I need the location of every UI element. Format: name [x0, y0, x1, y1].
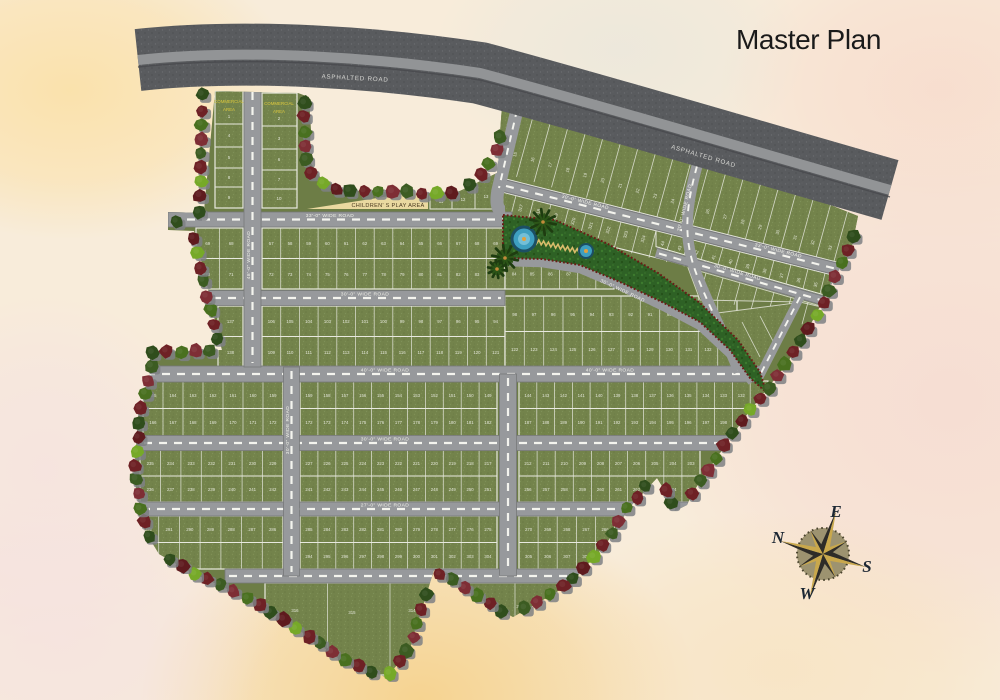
- svg-text:189: 189: [560, 420, 568, 425]
- svg-text:181: 181: [467, 420, 475, 425]
- svg-text:140: 140: [595, 393, 603, 398]
- svg-text:289: 289: [207, 527, 215, 532]
- svg-text:244: 244: [359, 487, 367, 492]
- svg-text:152: 152: [431, 393, 439, 398]
- svg-text:30'-0" WIDE ROAD: 30'-0" WIDE ROAD: [285, 406, 291, 455]
- svg-text:211: 211: [543, 461, 550, 466]
- svg-text:269: 269: [544, 527, 552, 532]
- svg-text:109: 109: [268, 350, 276, 355]
- svg-text:124: 124: [550, 347, 558, 352]
- svg-text:133: 133: [720, 393, 728, 398]
- svg-text:N: N: [771, 528, 785, 547]
- svg-text:246: 246: [395, 487, 403, 492]
- svg-text:136: 136: [667, 393, 675, 398]
- svg-text:60: 60: [325, 241, 330, 246]
- svg-text:316: 316: [291, 608, 299, 613]
- svg-text:276: 276: [467, 527, 475, 532]
- svg-text:78: 78: [381, 272, 386, 277]
- svg-text:191: 191: [595, 420, 603, 425]
- svg-text:118: 118: [436, 350, 443, 355]
- svg-text:194: 194: [649, 420, 657, 425]
- svg-text:195: 195: [667, 420, 675, 425]
- svg-text:232: 232: [208, 461, 216, 466]
- svg-text:72: 72: [269, 272, 274, 277]
- svg-text:79: 79: [400, 272, 405, 277]
- svg-text:224: 224: [359, 461, 367, 466]
- svg-text:231: 231: [228, 461, 236, 466]
- svg-text:298: 298: [377, 554, 385, 559]
- svg-text:96: 96: [551, 312, 556, 317]
- svg-text:27'-0" WIDE ROAD: 27'-0" WIDE ROAD: [361, 503, 410, 509]
- svg-text:97: 97: [437, 319, 442, 324]
- svg-text:180: 180: [449, 420, 457, 425]
- svg-text:204: 204: [669, 461, 677, 466]
- svg-text:68: 68: [475, 241, 480, 246]
- svg-text:40'-0" WIDE ROAD: 40'-0" WIDE ROAD: [361, 368, 410, 374]
- svg-text:238: 238: [188, 487, 196, 492]
- svg-text:247: 247: [413, 487, 421, 492]
- svg-text:178: 178: [413, 420, 421, 425]
- svg-text:250: 250: [467, 487, 475, 492]
- svg-text:163: 163: [189, 393, 197, 398]
- svg-text:287: 287: [248, 527, 256, 532]
- svg-text:142: 142: [560, 393, 568, 398]
- svg-text:74: 74: [306, 272, 311, 277]
- svg-text:227: 227: [305, 461, 313, 466]
- svg-text:192: 192: [613, 420, 621, 425]
- svg-text:106: 106: [268, 319, 276, 324]
- svg-text:144: 144: [524, 393, 532, 398]
- svg-text:97: 97: [532, 312, 537, 317]
- svg-text:149: 149: [484, 393, 492, 398]
- svg-text:13: 13: [484, 194, 489, 199]
- svg-text:125: 125: [569, 347, 577, 352]
- svg-text:207: 207: [615, 461, 623, 466]
- svg-text:73: 73: [288, 272, 293, 277]
- svg-text:Master Plan: Master Plan: [736, 24, 881, 55]
- svg-text:277: 277: [449, 527, 457, 532]
- svg-text:301: 301: [431, 554, 439, 559]
- svg-text:104: 104: [305, 319, 313, 324]
- svg-text:217: 217: [484, 461, 492, 466]
- svg-text:117: 117: [417, 350, 424, 355]
- svg-text:137: 137: [227, 319, 235, 324]
- svg-text:135: 135: [684, 393, 692, 398]
- svg-text:279: 279: [413, 527, 421, 532]
- svg-text:300: 300: [413, 554, 421, 559]
- svg-text:256: 256: [524, 487, 532, 492]
- svg-text:CHILDREN' S PLAY AREA: CHILDREN' S PLAY AREA: [351, 203, 424, 209]
- svg-text:65: 65: [419, 241, 424, 246]
- svg-text:278: 278: [431, 527, 439, 532]
- svg-text:170: 170: [229, 420, 237, 425]
- svg-text:57: 57: [269, 241, 274, 246]
- svg-text:66: 66: [437, 241, 442, 246]
- svg-text:169: 169: [209, 420, 217, 425]
- svg-text:122: 122: [511, 347, 519, 352]
- svg-text:188: 188: [542, 420, 550, 425]
- svg-text:128: 128: [627, 347, 635, 352]
- svg-text:114: 114: [361, 350, 368, 355]
- svg-text:116: 116: [399, 350, 406, 355]
- svg-text:63: 63: [381, 241, 386, 246]
- svg-text:249: 249: [449, 487, 457, 492]
- svg-text:143: 143: [542, 393, 550, 398]
- svg-text:236: 236: [147, 487, 155, 492]
- svg-text:218: 218: [467, 461, 475, 466]
- svg-text:182: 182: [484, 420, 492, 425]
- svg-text:30'-0" WIDE ROAD: 30'-0" WIDE ROAD: [361, 437, 410, 443]
- svg-text:127: 127: [608, 347, 616, 352]
- svg-text:257: 257: [543, 487, 551, 492]
- svg-text:102: 102: [343, 319, 351, 324]
- svg-text:158: 158: [323, 393, 331, 398]
- svg-text:282: 282: [359, 527, 367, 532]
- svg-text:103: 103: [324, 319, 332, 324]
- svg-text:157: 157: [341, 393, 349, 398]
- svg-text:242: 242: [269, 487, 277, 492]
- svg-text:226: 226: [323, 461, 331, 466]
- svg-text:160: 160: [249, 393, 257, 398]
- svg-text:212: 212: [524, 461, 532, 466]
- svg-text:131: 131: [685, 347, 693, 352]
- svg-text:111: 111: [305, 350, 312, 355]
- svg-text:237: 237: [167, 487, 175, 492]
- svg-text:61: 61: [344, 241, 349, 246]
- svg-text:98: 98: [512, 312, 517, 317]
- svg-text:302: 302: [449, 554, 457, 559]
- svg-text:67: 67: [456, 241, 461, 246]
- svg-text:240: 240: [228, 487, 236, 492]
- svg-text:130: 130: [666, 347, 674, 352]
- svg-text:129: 129: [646, 347, 654, 352]
- svg-text:COMMERCIAL: COMMERCIAL: [264, 101, 294, 106]
- svg-text:259: 259: [579, 487, 587, 492]
- svg-text:71: 71: [229, 272, 234, 277]
- svg-text:69: 69: [205, 241, 210, 246]
- svg-text:193: 193: [631, 420, 639, 425]
- svg-text:161: 161: [229, 393, 237, 398]
- svg-text:132: 132: [704, 347, 712, 352]
- svg-text:94: 94: [590, 312, 595, 317]
- svg-text:91: 91: [648, 312, 653, 317]
- svg-text:198: 198: [720, 420, 728, 425]
- svg-text:303: 303: [467, 554, 475, 559]
- svg-text:206: 206: [633, 461, 641, 466]
- svg-text:150: 150: [467, 393, 475, 398]
- svg-text:E: E: [829, 502, 841, 521]
- svg-text:239: 239: [208, 487, 216, 492]
- svg-text:123: 123: [530, 347, 538, 352]
- svg-text:159: 159: [269, 393, 277, 398]
- svg-text:284: 284: [323, 527, 331, 532]
- svg-text:294: 294: [305, 554, 313, 559]
- svg-text:83: 83: [475, 272, 480, 277]
- svg-text:S: S: [862, 557, 871, 576]
- svg-text:62: 62: [362, 241, 367, 246]
- svg-text:48'-0" WIDE ROAD: 48'-0" WIDE ROAD: [246, 231, 252, 280]
- svg-text:156: 156: [359, 393, 367, 398]
- svg-text:58: 58: [288, 241, 293, 246]
- svg-text:235: 235: [147, 461, 155, 466]
- svg-text:112: 112: [324, 350, 331, 355]
- svg-text:100: 100: [380, 319, 388, 324]
- svg-text:138: 138: [631, 393, 639, 398]
- svg-text:95: 95: [475, 319, 480, 324]
- svg-text:245: 245: [377, 487, 385, 492]
- svg-text:281: 281: [377, 527, 385, 532]
- svg-text:177: 177: [395, 420, 403, 425]
- svg-text:260: 260: [597, 487, 605, 492]
- svg-text:10: 10: [276, 196, 282, 201]
- svg-text:179: 179: [431, 420, 439, 425]
- svg-text:171: 171: [249, 420, 257, 425]
- svg-text:267: 267: [582, 527, 590, 532]
- svg-text:121: 121: [492, 350, 500, 355]
- svg-text:190: 190: [578, 420, 586, 425]
- svg-text:153: 153: [413, 393, 421, 398]
- svg-text:258: 258: [561, 487, 569, 492]
- svg-text:76: 76: [344, 272, 349, 277]
- svg-text:105: 105: [286, 319, 294, 324]
- svg-text:261: 261: [615, 487, 623, 492]
- svg-text:81: 81: [437, 272, 442, 277]
- svg-text:223: 223: [377, 461, 385, 466]
- svg-text:230: 230: [249, 461, 257, 466]
- svg-text:95: 95: [570, 312, 575, 317]
- svg-text:288: 288: [228, 527, 236, 532]
- svg-text:242: 242: [323, 487, 331, 492]
- svg-text:139: 139: [613, 393, 621, 398]
- svg-text:197: 197: [702, 420, 710, 425]
- svg-text:99: 99: [400, 319, 405, 324]
- svg-text:94: 94: [493, 319, 498, 324]
- svg-text:248: 248: [431, 487, 439, 492]
- svg-text:221: 221: [413, 461, 421, 466]
- svg-text:86: 86: [548, 272, 553, 277]
- svg-text:241: 241: [305, 487, 313, 492]
- svg-text:92: 92: [628, 312, 633, 317]
- svg-text:243: 243: [341, 487, 349, 492]
- svg-text:151: 151: [449, 393, 457, 398]
- svg-text:40'-0" WIDE ROAD: 40'-0" WIDE ROAD: [586, 368, 635, 374]
- svg-text:154: 154: [395, 393, 403, 398]
- svg-text:241: 241: [249, 487, 257, 492]
- svg-text:138: 138: [227, 350, 235, 355]
- svg-text:172: 172: [305, 420, 313, 425]
- svg-text:176: 176: [377, 420, 385, 425]
- svg-text:251: 251: [484, 487, 492, 492]
- svg-text:113: 113: [343, 350, 350, 355]
- svg-text:173: 173: [323, 420, 331, 425]
- svg-text:COMMERCIAL: COMMERCIAL: [214, 99, 244, 104]
- svg-text:208: 208: [597, 461, 605, 466]
- svg-text:209: 209: [579, 461, 587, 466]
- svg-text:12: 12: [461, 197, 466, 202]
- svg-text:168: 168: [189, 420, 197, 425]
- svg-text:307: 307: [563, 554, 571, 559]
- svg-text:137: 137: [649, 393, 657, 398]
- svg-text:85: 85: [530, 272, 535, 277]
- svg-text:167: 167: [169, 420, 177, 425]
- svg-text:229: 229: [269, 461, 277, 466]
- svg-text:297: 297: [359, 554, 367, 559]
- svg-text:159: 159: [305, 393, 313, 398]
- svg-text:175: 175: [359, 420, 367, 425]
- svg-text:304: 304: [484, 554, 492, 559]
- svg-text:306: 306: [544, 554, 552, 559]
- svg-text:AREA: AREA: [273, 109, 285, 114]
- svg-text:315: 315: [348, 610, 356, 615]
- svg-text:68: 68: [229, 241, 234, 246]
- svg-text:275: 275: [484, 527, 492, 532]
- svg-text:219: 219: [449, 461, 457, 466]
- svg-text:126: 126: [588, 347, 596, 352]
- svg-text:286: 286: [269, 527, 277, 532]
- svg-text:119: 119: [455, 350, 462, 355]
- svg-text:210: 210: [561, 461, 569, 466]
- svg-text:87: 87: [566, 272, 571, 277]
- svg-text:110: 110: [287, 350, 294, 355]
- svg-text:33'-0" WIDE ROAD: 33'-0" WIDE ROAD: [306, 213, 355, 219]
- svg-text:115: 115: [380, 350, 387, 355]
- svg-text:82: 82: [456, 272, 461, 277]
- svg-text:80: 80: [419, 272, 424, 277]
- svg-text:233: 233: [188, 461, 196, 466]
- svg-text:220: 220: [431, 461, 439, 466]
- svg-text:296: 296: [341, 554, 349, 559]
- svg-text:AREA: AREA: [223, 107, 235, 112]
- svg-text:59: 59: [306, 241, 311, 246]
- svg-text:69: 69: [493, 241, 498, 246]
- svg-text:290: 290: [186, 527, 194, 532]
- svg-text:234: 234: [167, 461, 175, 466]
- svg-text:75: 75: [325, 272, 330, 277]
- svg-text:W: W: [799, 584, 816, 603]
- svg-text:285: 285: [305, 527, 313, 532]
- svg-text:141: 141: [578, 393, 586, 398]
- svg-text:164: 164: [169, 393, 177, 398]
- svg-text:166: 166: [149, 420, 157, 425]
- svg-text:222: 222: [395, 461, 403, 466]
- svg-text:187: 187: [524, 420, 532, 425]
- svg-text:84: 84: [512, 272, 517, 277]
- svg-text:174: 174: [341, 420, 349, 425]
- svg-text:172: 172: [269, 420, 277, 425]
- svg-text:268: 268: [563, 527, 571, 532]
- svg-text:291: 291: [166, 527, 174, 532]
- svg-text:305: 305: [525, 554, 533, 559]
- svg-text:295: 295: [323, 554, 331, 559]
- svg-text:98: 98: [419, 319, 424, 324]
- svg-text:155: 155: [377, 393, 385, 398]
- svg-text:162: 162: [209, 393, 217, 398]
- svg-text:132: 132: [738, 393, 746, 398]
- svg-text:77: 77: [362, 272, 367, 277]
- svg-text:205: 205: [651, 461, 659, 466]
- svg-text:280: 280: [395, 527, 403, 532]
- svg-text:96: 96: [456, 319, 461, 324]
- svg-text:299: 299: [395, 554, 403, 559]
- svg-text:203: 203: [687, 461, 695, 466]
- svg-text:134: 134: [702, 393, 710, 398]
- svg-text:93: 93: [609, 312, 614, 317]
- svg-text:120: 120: [473, 350, 481, 355]
- svg-text:101: 101: [361, 319, 369, 324]
- svg-text:270: 270: [525, 527, 533, 532]
- svg-text:30'-0" WIDE ROAD: 30'-0" WIDE ROAD: [341, 292, 390, 298]
- svg-text:64: 64: [400, 241, 405, 246]
- svg-text:225: 225: [341, 461, 349, 466]
- svg-text:196: 196: [684, 420, 692, 425]
- svg-text:283: 283: [341, 527, 349, 532]
